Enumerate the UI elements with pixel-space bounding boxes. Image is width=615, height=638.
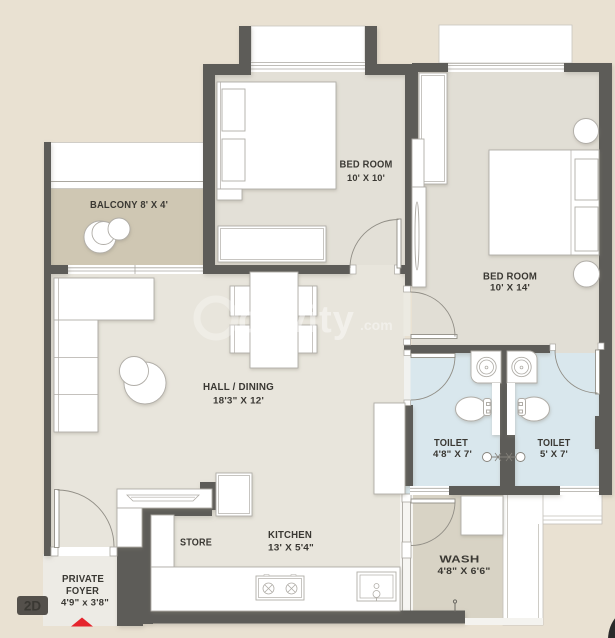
svg-text:4'8" X 7': 4'8" X 7' [433, 449, 472, 460]
svg-text:13' X 5'4": 13' X 5'4" [268, 543, 314, 554]
svg-text:STORE: STORE [180, 538, 212, 549]
svg-text:ctivity: ctivity [238, 299, 355, 341]
svg-text:HALL / DINING: HALL / DINING [203, 382, 274, 393]
svg-text:KITCHEN: KITCHEN [268, 530, 312, 541]
svg-text:10' X 10': 10' X 10' [347, 173, 385, 184]
svg-text:18'3" X 12': 18'3" X 12' [213, 396, 264, 407]
svg-text:.com: .com [360, 317, 393, 333]
svg-text:4'9" x 3'8": 4'9" x 3'8" [61, 598, 109, 609]
svg-text:TOILET: TOILET [434, 438, 468, 449]
svg-text:10' X 14': 10' X 14' [490, 283, 530, 294]
svg-text:4'8" X 6'6": 4'8" X 6'6" [438, 566, 491, 577]
svg-text:2D: 2D [24, 599, 42, 614]
svg-text:BED ROOM: BED ROOM [340, 160, 393, 171]
svg-text:FOYER: FOYER [66, 586, 100, 597]
svg-text:5' X 7': 5' X 7' [540, 449, 568, 460]
svg-text:WASH: WASH [440, 555, 480, 566]
svg-text:BED ROOM: BED ROOM [483, 272, 537, 283]
svg-text:TOILET: TOILET [538, 438, 571, 449]
svg-text:BALCONY 8' X 4': BALCONY 8' X 4' [90, 200, 168, 211]
svg-text:PRIVATE: PRIVATE [62, 574, 104, 585]
